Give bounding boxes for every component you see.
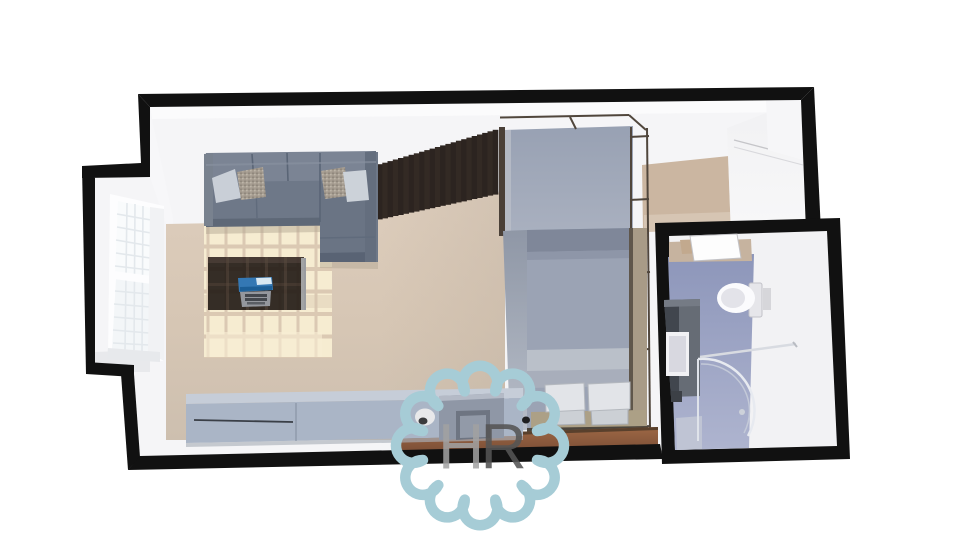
svg-text:H: H: [438, 411, 484, 483]
svg-text:R: R: [481, 411, 527, 483]
